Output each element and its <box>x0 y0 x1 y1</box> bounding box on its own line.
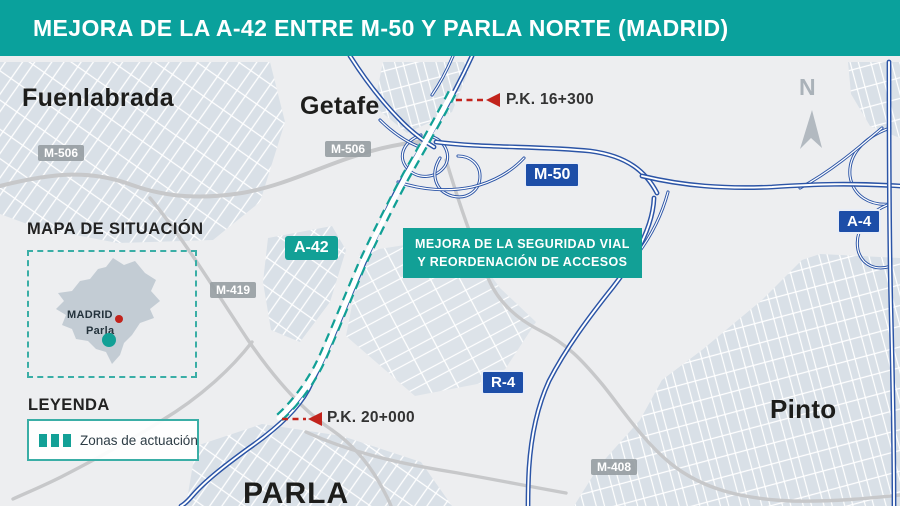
pk-label-north: P.K. 16+300 <box>506 91 594 109</box>
callout-line-1: MEJORA DE LA SEGURIDAD VIAL <box>415 235 630 253</box>
improvement-callout: MEJORA DE LA SEGURIDAD VIAL Y REORDENACI… <box>403 228 642 278</box>
compass-north-label: N <box>799 74 816 101</box>
legend-box: Zonas de actuación <box>27 419 199 461</box>
page-title: MEJORA DE LA A-42 ENTRE M-50 Y PARLA NOR… <box>0 15 729 42</box>
road-shield-m408: M-408 <box>591 459 637 475</box>
action-zone-swatch-icon <box>39 434 71 447</box>
road-shield-m506-west: M-506 <box>38 145 84 161</box>
title-bar: MEJORA DE LA A-42 ENTRE M-50 Y PARLA NOR… <box>0 0 900 56</box>
callout-line-2: Y REORDENACIÓN DE ACCESOS <box>415 253 630 271</box>
road-shield-a4: A-4 <box>837 209 881 234</box>
infographic-map: MEJORA DE LA A-42 ENTRE M-50 Y PARLA NOR… <box>0 0 900 506</box>
situation-map-box: MADRID Parla <box>27 250 197 378</box>
city-label-getafe: Getafe <box>300 92 380 121</box>
road-shield-m419: M-419 <box>210 282 256 298</box>
pk-label-south: P.K. 20+000 <box>327 409 415 427</box>
legend-item-label: Zonas de actuación <box>80 433 198 448</box>
situation-map-title: MAPA DE SITUACIÓN <box>27 220 203 239</box>
city-label-parla: PARLA <box>243 477 349 506</box>
road-shield-m50: M-50 <box>524 162 580 188</box>
road-shield-a42: A-42 <box>285 236 338 260</box>
parla-dot-icon <box>102 333 116 347</box>
city-label-fuenlabrada: Fuenlabrada <box>22 84 174 113</box>
city-label-pinto: Pinto <box>770 394 837 425</box>
road-shield-m506-getafe: M-506 <box>325 141 371 157</box>
madrid-dot-icon <box>115 315 123 323</box>
mini-map-madrid-label: MADRID <box>67 309 113 321</box>
legend-title: LEYENDA <box>28 396 110 415</box>
road-shield-r4: R-4 <box>481 370 525 395</box>
